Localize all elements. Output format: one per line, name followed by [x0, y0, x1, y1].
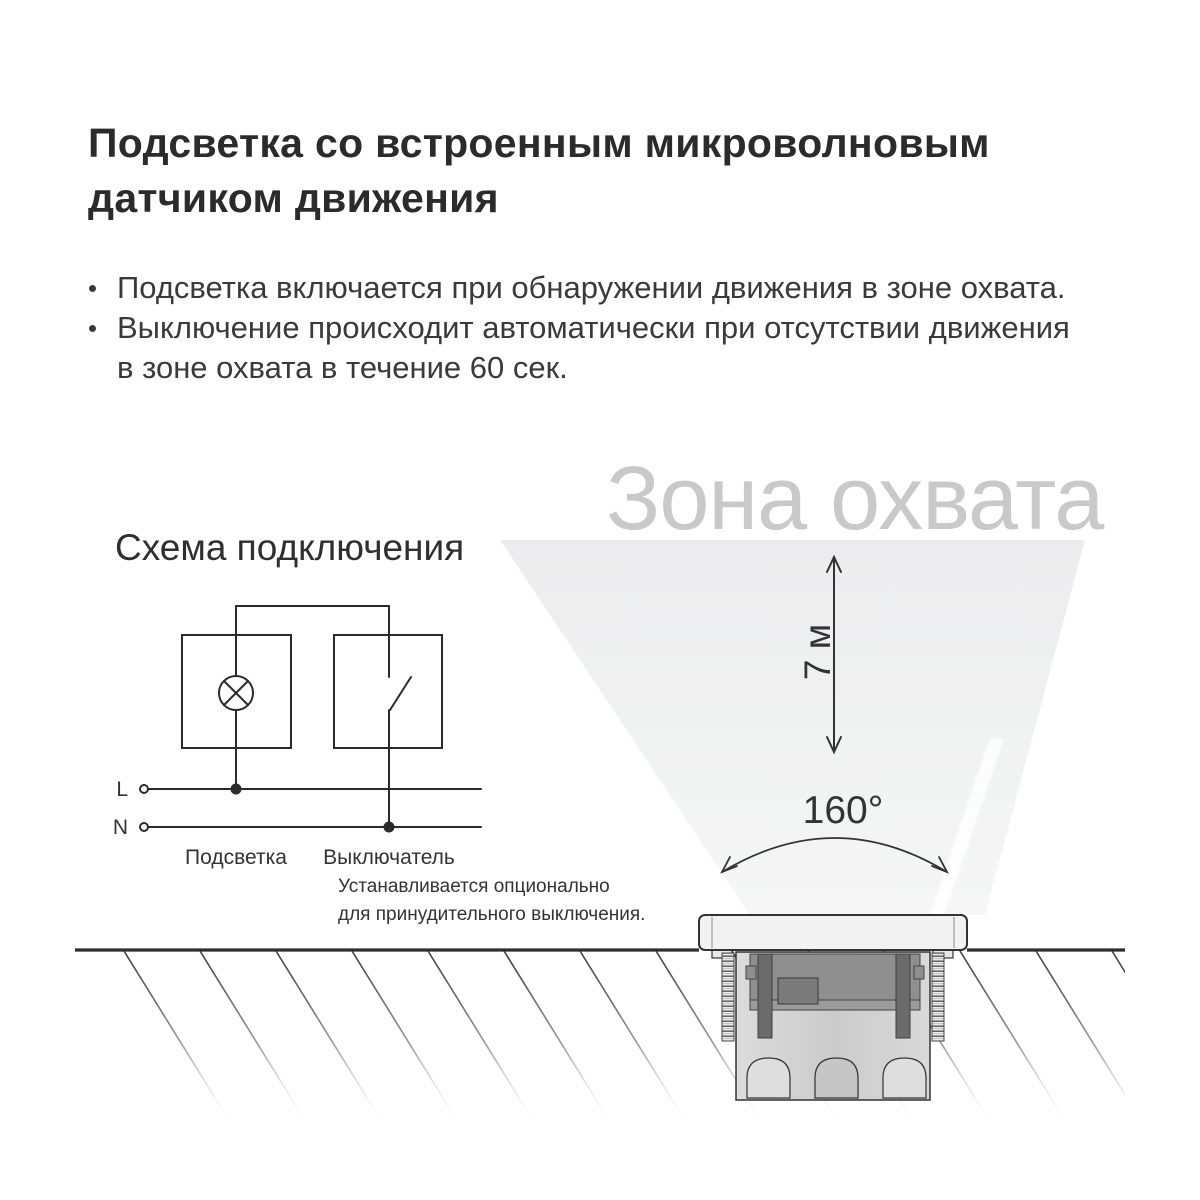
coverage-cone [500, 540, 1085, 915]
switch-label: Выключатель [323, 846, 455, 869]
lamp-icon [219, 676, 253, 710]
knockout-arch-middle [815, 1058, 858, 1098]
bullet-1-text: Подсветка включается при обнаружении дви… [117, 268, 1065, 308]
coverage-zone-watermark: Зона охвата [606, 448, 1103, 551]
module-clip-left [746, 966, 756, 979]
bullet-2-line-1: Выключение происходит автоматически при … [117, 308, 1070, 348]
page-title-line-1: Подсветка со встроенным микроволновым [88, 116, 990, 171]
neutral-label: N [113, 816, 128, 839]
bullet-item: Подсветка включается при обнаружении дви… [88, 268, 1070, 308]
switch-note-line-1: Устанавливается опционально [338, 876, 610, 897]
angle-label: 160° [803, 789, 884, 832]
light-label: Подсветка [185, 846, 287, 869]
terminal-neutral [140, 823, 148, 831]
wiring-heading: Схема подключения [115, 527, 464, 569]
junction-live [232, 785, 241, 794]
module-leg-left [758, 954, 772, 1038]
module-leg-right [896, 954, 910, 1038]
ground-hatching [124, 951, 1200, 1122]
module-component [778, 978, 818, 1004]
face-plate [699, 915, 967, 950]
sensor-module [750, 954, 920, 1004]
switch-note-line-2: для принудительного выключения. [338, 904, 645, 925]
knockout-arch-right [883, 1058, 926, 1098]
feature-bullets: Подсветка включается при обнаружении дви… [88, 268, 1070, 388]
threaded-rod-left [722, 953, 734, 1041]
switch-icon [389, 606, 411, 827]
bullet-2-line-2: в зоне охвата в течение 60 сек. [117, 348, 1070, 388]
luminaire-cross-section [699, 915, 967, 1100]
live-label: L [116, 778, 128, 801]
knockout-arch-left [747, 1058, 790, 1098]
page-title-line-2: датчиком движения [88, 171, 990, 226]
module-clip-right [914, 966, 924, 979]
bullet-item: Выключение происходит автоматически при … [88, 308, 1070, 388]
terminal-live [140, 785, 148, 793]
range-label: 7 м [797, 624, 838, 680]
page-title: Подсветка со встроенным микроволновым да… [88, 116, 990, 226]
junction-neutral [385, 823, 394, 832]
threaded-rod-right [932, 953, 944, 1041]
module-flange [750, 1000, 920, 1010]
wiring-diagram [140, 606, 481, 832]
